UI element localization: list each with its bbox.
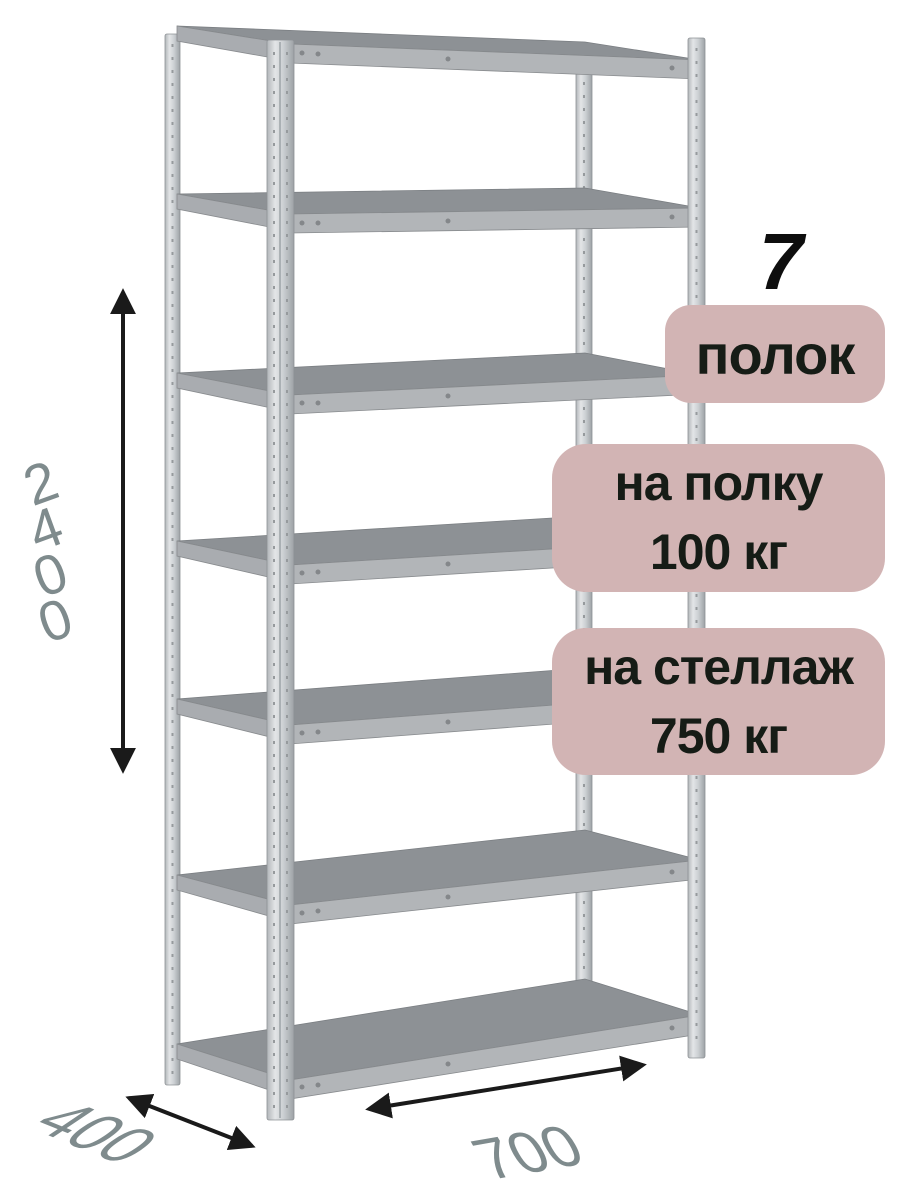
- shelf-6: [177, 830, 700, 924]
- per-rack-load-value: 750 кг: [650, 702, 787, 771]
- post-back-left: [165, 34, 180, 1085]
- per-rack-load-text: на стеллаж: [584, 633, 853, 702]
- shelf-count-label: полок: [696, 322, 855, 387]
- per-rack-load-badge: на стеллаж 750 кг: [552, 628, 885, 775]
- shelf-2: [177, 188, 700, 233]
- shelf-count-badge: полок: [665, 305, 885, 403]
- shelf-count-number: 7: [738, 222, 824, 306]
- per-shelf-load-badge: на полку 100 кг: [552, 444, 885, 592]
- shelf-3: [177, 353, 700, 414]
- per-shelf-load-text: на полку: [615, 449, 823, 518]
- height-dimension-label: 2400: [3, 457, 94, 647]
- rack-illustration: [0, 0, 900, 1200]
- shelf-7: [177, 979, 700, 1099]
- per-shelf-load-value: 100 кг: [650, 518, 787, 587]
- post-front-left: [267, 40, 294, 1120]
- shelf-1: [177, 26, 700, 79]
- product-image: 7 полок на полку 100 кг на стеллаж 750 к…: [0, 0, 900, 1200]
